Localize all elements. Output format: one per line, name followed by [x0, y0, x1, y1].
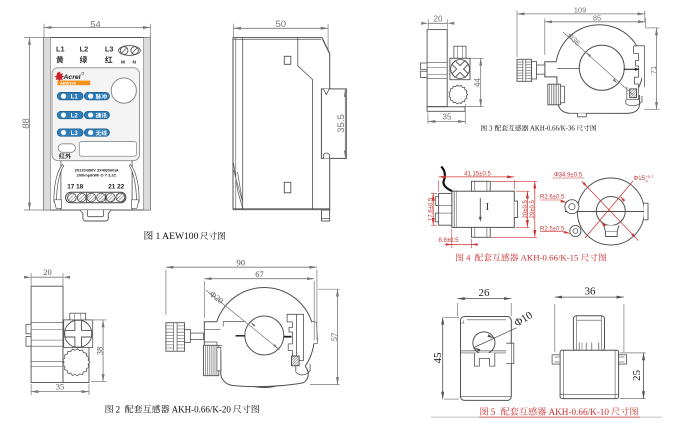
svg-text:R2.6±0.5: R2.6±0.5	[540, 195, 565, 201]
svg-text:88: 88	[21, 118, 32, 129]
svg-text:200imp/kWh O Y 3.2C: 200imp/kWh O Y 3.2C	[77, 172, 117, 177]
svg-text:8.8±0.5: 8.8±0.5	[439, 238, 460, 244]
svg-text:17 18: 17 18	[67, 184, 83, 191]
svg-text:L3: L3	[105, 44, 114, 53]
svg-text:109: 109	[574, 5, 587, 14]
svg-text:57: 57	[329, 333, 339, 342]
svg-text:AKH-0.66/K-20: AKH-0.66/K-20	[172, 404, 232, 414]
svg-text:L1: L1	[56, 44, 65, 53]
svg-text:17.6±0.5: 17.6±0.5	[429, 197, 435, 221]
svg-text:35.5: 35.5	[336, 114, 347, 133]
svg-text:Φ15: Φ15	[634, 176, 646, 182]
svg-text:29±0.5: 29±0.5	[530, 199, 536, 218]
svg-text:2: 2	[116, 404, 121, 414]
svg-text:85: 85	[593, 13, 601, 22]
svg-text:L2: L2	[71, 113, 79, 119]
svg-text:N: N	[132, 59, 136, 65]
svg-text:3: 3	[489, 126, 493, 133]
svg-text:5: 5	[491, 407, 496, 417]
svg-text:AEW100: AEW100	[60, 80, 77, 85]
svg-text:71: 71	[649, 66, 658, 74]
svg-text:26: 26	[479, 287, 491, 299]
svg-text:1 AEW100: 1 AEW100	[156, 231, 199, 242]
svg-text:20: 20	[434, 15, 443, 24]
svg-text:L3: L3	[71, 131, 79, 137]
svg-text:45: 45	[432, 352, 444, 364]
svg-text:35: 35	[56, 382, 65, 392]
svg-text:20±0.5: 20±0.5	[523, 199, 529, 218]
svg-text:L2: L2	[80, 44, 89, 53]
svg-text:20: 20	[43, 267, 52, 277]
svg-text:4: 4	[466, 253, 471, 263]
svg-text:AKH-0.66/K-15: AKH-0.66/K-15	[521, 253, 580, 263]
svg-text:AKH-0.66/K-10: AKH-0.66/K-10	[549, 407, 610, 417]
svg-text:I: I	[486, 201, 490, 213]
svg-text:44: 44	[473, 78, 482, 87]
svg-text:36: 36	[585, 286, 597, 298]
svg-text:35: 35	[443, 112, 452, 121]
svg-text:50: 50	[276, 19, 287, 30]
svg-text:L1: L1	[71, 94, 79, 100]
svg-text:41.15±0.5: 41.15±0.5	[464, 171, 491, 177]
svg-text:M: M	[121, 59, 125, 65]
svg-text:AKH-0.66/K-36: AKH-0.66/K-36	[530, 126, 575, 133]
svg-text:25: 25	[631, 370, 643, 382]
svg-text:67: 67	[255, 269, 264, 279]
svg-text:Φ34.9±0.5: Φ34.9±0.5	[554, 173, 583, 179]
svg-text:54: 54	[90, 19, 101, 30]
svg-text:38: 38	[94, 347, 104, 356]
svg-text:21 22: 21 22	[108, 184, 124, 191]
svg-text:90: 90	[237, 257, 246, 267]
